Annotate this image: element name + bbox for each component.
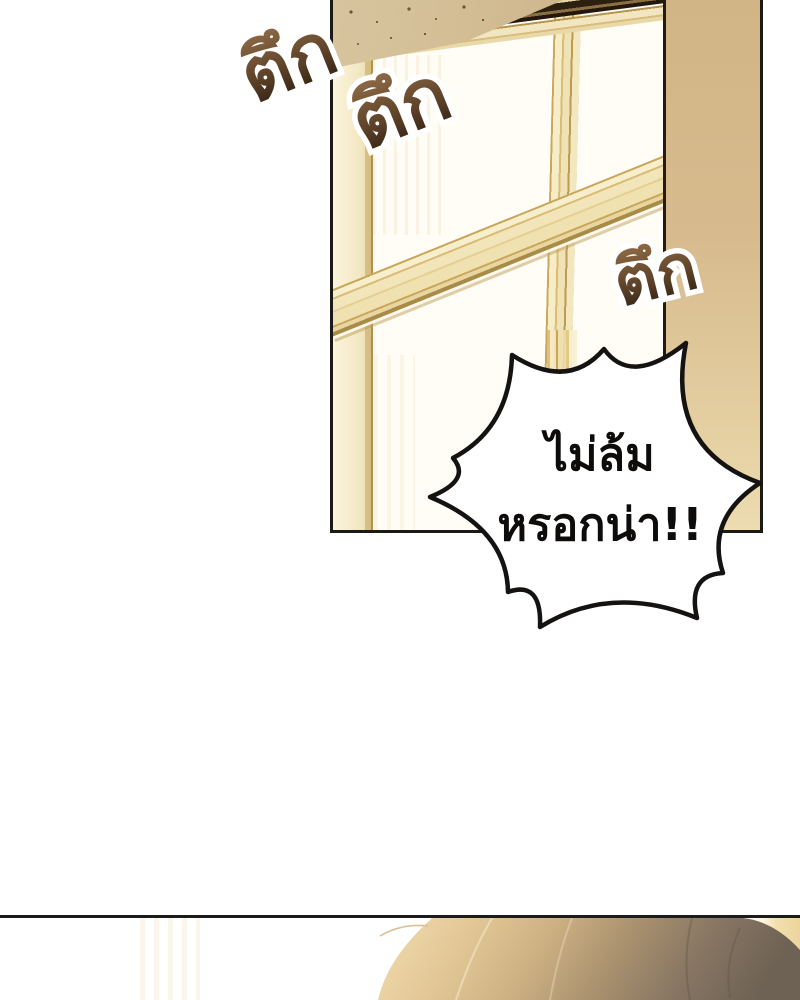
comic-page: ตึก ตึก ตึก ตึก ตึก ตึก ไม่ล้ม หรอกน่า!! bbox=[0, 0, 800, 1000]
speech-line-2: หรอกน่า!! bbox=[455, 490, 745, 560]
hair-silhouette bbox=[378, 918, 800, 1000]
speech-text: ไม่ล้ม หรอกน่า!! bbox=[455, 420, 745, 560]
speech-line-1: ไม่ล้ม bbox=[455, 420, 745, 490]
light-rays-bottom bbox=[140, 918, 200, 1000]
character-hair bbox=[372, 918, 800, 1000]
